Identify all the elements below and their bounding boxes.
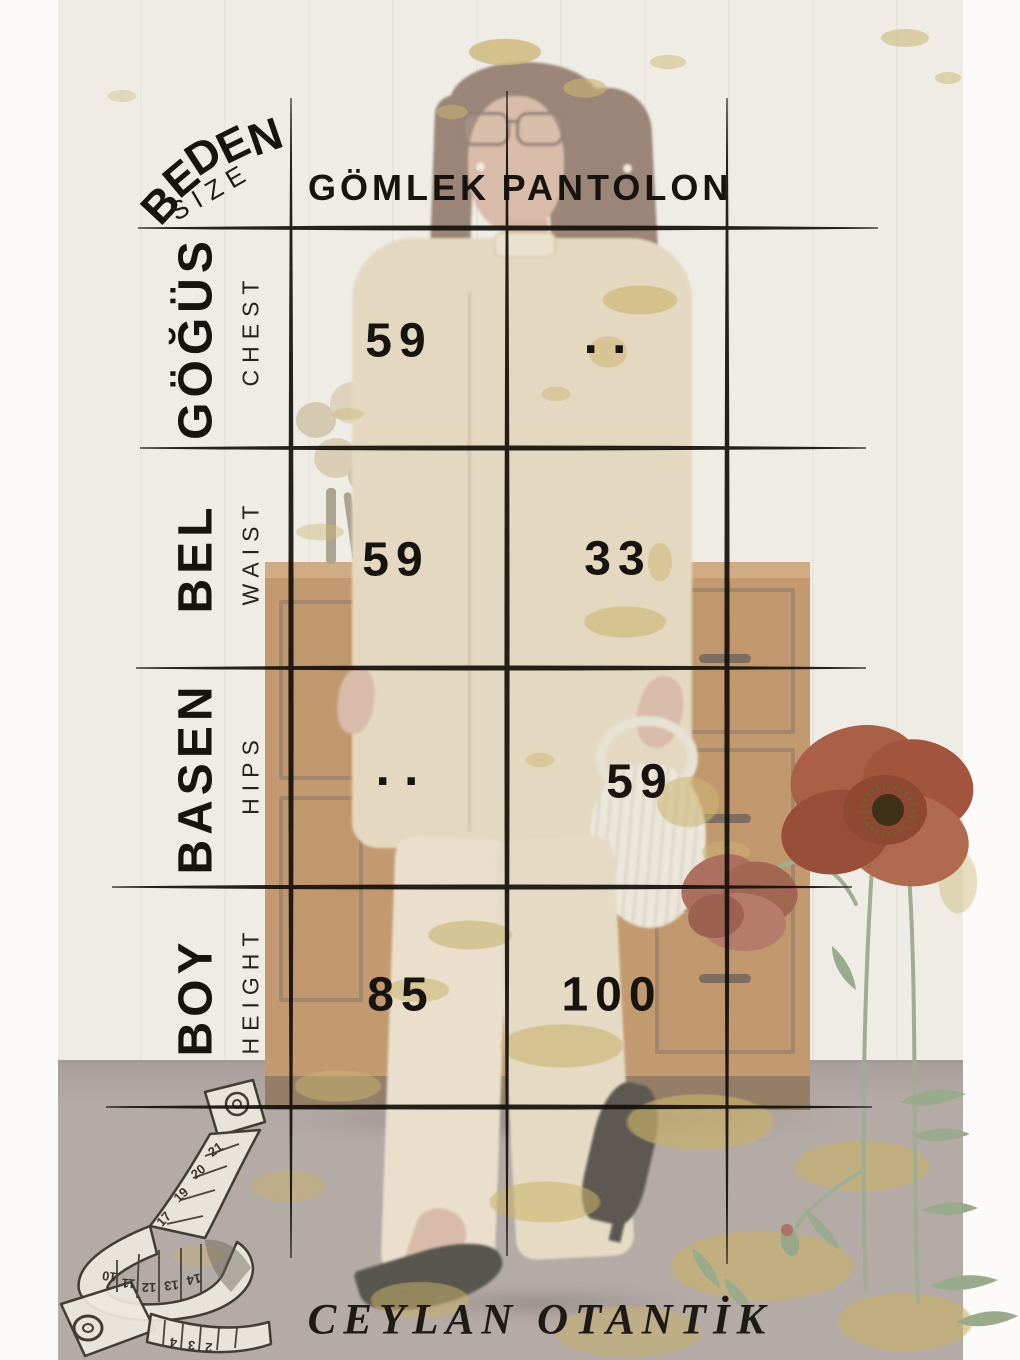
row-sublabel-height: HEIGHT	[238, 926, 265, 1055]
column-header-gomlek: GÖMLEK	[308, 167, 490, 209]
row-sublabel-chest: CHEST	[238, 274, 265, 387]
row-label-gogus: GÖĞÜS	[169, 236, 224, 440]
cell-bel-gomlek: 59	[362, 533, 429, 588]
cell-basen-pantolon: 59	[606, 755, 673, 810]
cell-gogus-pantolon: ..	[584, 306, 641, 366]
column-header-pantolon: PANTOLON	[502, 167, 733, 209]
row-sublabel-hips: HIPS	[238, 733, 265, 815]
cell-bel-pantolon: 33	[584, 532, 651, 587]
row-label-boy: BOY	[169, 937, 224, 1056]
cell-boy-gomlek: 85	[367, 968, 434, 1023]
brand-name: CEYLAN OTANTİK	[308, 1296, 773, 1345]
cell-boy-pantolon: 100	[561, 968, 662, 1023]
cell-gogus-gomlek: 59	[365, 314, 432, 369]
row-sublabel-waist: WAIST	[238, 499, 265, 606]
row-label-bel: BEL	[169, 503, 224, 614]
cell-basen-gomlek: ..	[376, 738, 433, 798]
size-chart-image: 17 19 20 21 10 11 12 13 14 4 3 2 BEDEN S…	[0, 0, 1020, 1360]
row-label-basen: BASEN	[169, 681, 224, 874]
